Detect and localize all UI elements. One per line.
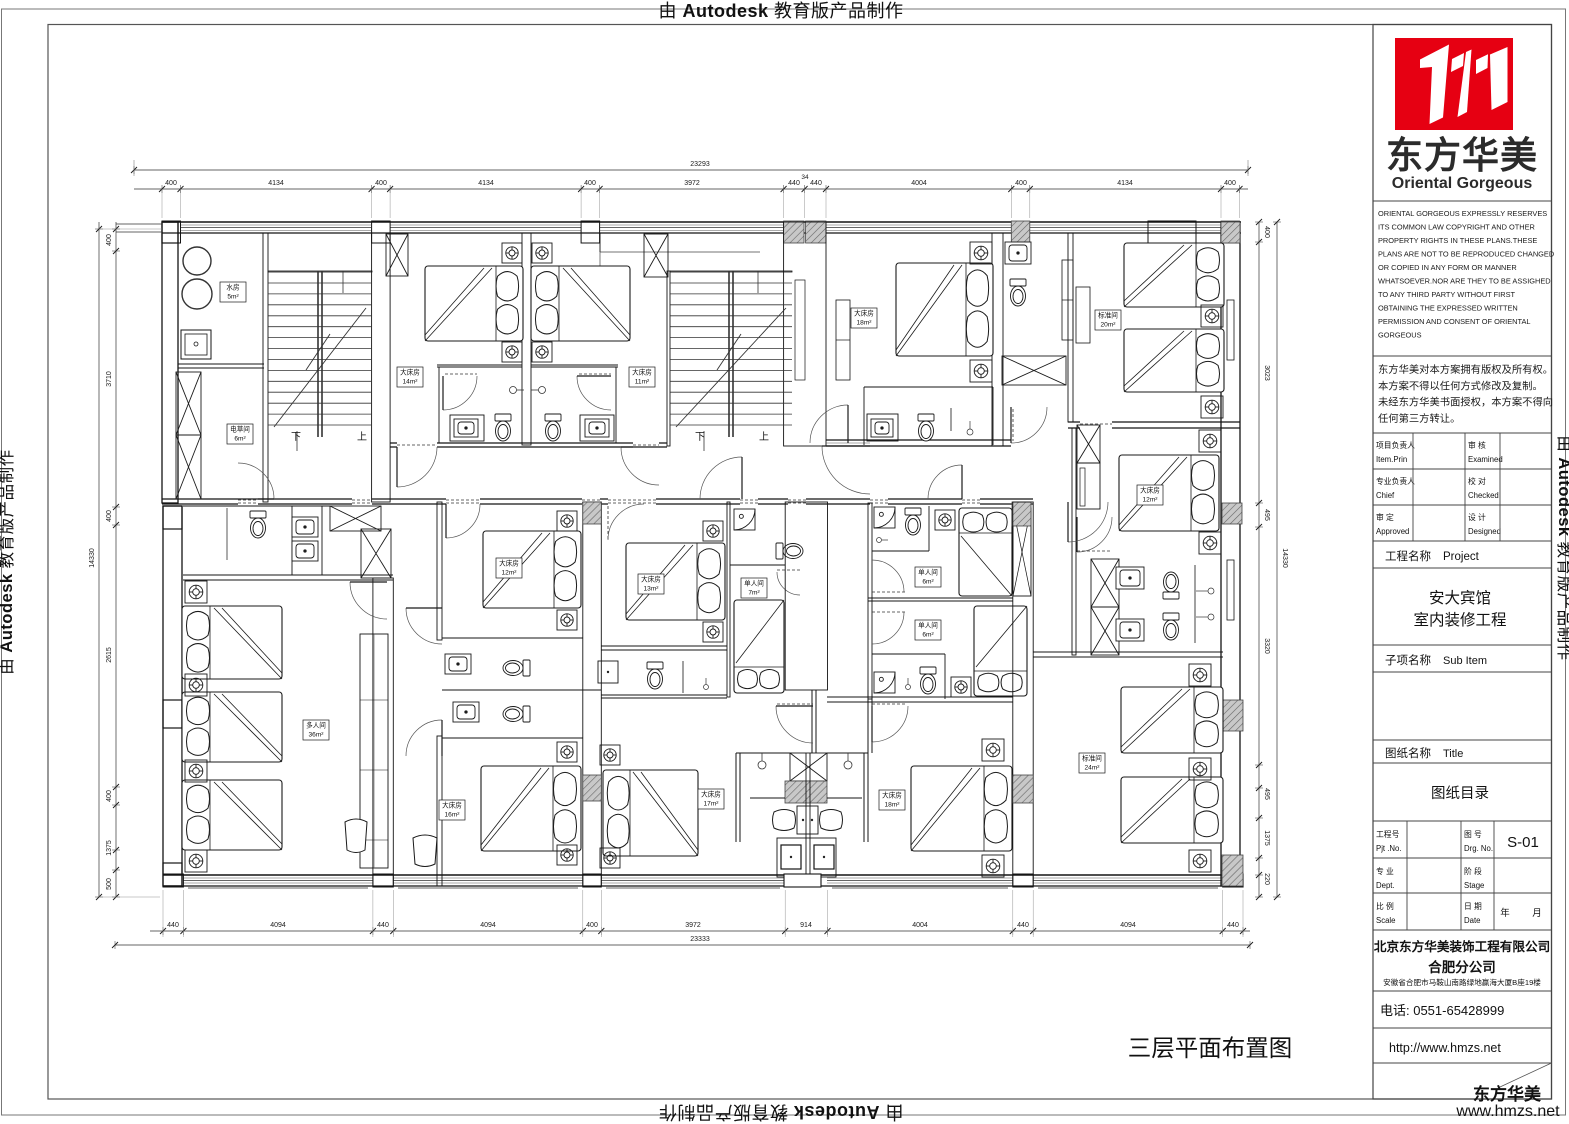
svg-text:东方华美: 东方华美 — [1473, 1084, 1542, 1104]
svg-text:Date: Date — [1464, 916, 1480, 925]
svg-text:3972: 3972 — [685, 922, 701, 929]
svg-text:6m²: 6m² — [234, 436, 246, 443]
svg-text:室内装修工程: 室内装修工程 — [1413, 611, 1506, 629]
svg-text:440: 440 — [1017, 922, 1029, 929]
svg-text:月: 月 — [1532, 908, 1542, 919]
svg-text:专 业: 专 业 — [1376, 866, 1394, 876]
svg-text:PERMISSION AND CONSENT OF ORIE: PERMISSION AND CONSENT OF ORIENTAL — [1378, 317, 1531, 326]
svg-text:440: 440 — [810, 180, 822, 187]
svg-text:审 定: 审 定 — [1376, 512, 1394, 522]
svg-text:下: 下 — [291, 432, 301, 443]
svg-text:www.hmzs.net: www.hmzs.net — [1455, 1103, 1560, 1120]
svg-text:4134: 4134 — [478, 180, 494, 187]
svg-text:Examined: Examined — [1468, 455, 1503, 464]
svg-text:由 Autodesk 教育版产品制作: 由 Autodesk 教育版产品制作 — [658, 1102, 903, 1122]
svg-text:比 例: 比 例 — [1376, 901, 1394, 911]
svg-text:500: 500 — [106, 878, 113, 890]
svg-text:18m²: 18m² — [884, 802, 900, 809]
svg-text:Scale: Scale — [1376, 916, 1396, 925]
svg-text:OBTAINING THE EXPRESSED WRITTE: OBTAINING THE EXPRESSED WRITTEN — [1378, 304, 1518, 313]
svg-text:34: 34 — [801, 174, 809, 181]
svg-text:400: 400 — [106, 790, 113, 802]
svg-text:工程号: 工程号 — [1376, 830, 1400, 839]
svg-text:12m²: 12m² — [501, 570, 517, 577]
svg-text:S-01: S-01 — [1507, 834, 1539, 851]
svg-text:PROPERTY RIGHTS IN THESE PLANS: PROPERTY RIGHTS IN THESE PLANS.THESE — [1378, 236, 1537, 245]
svg-text:WHATSOEVER.NOR ARE THEY TO BE: WHATSOEVER.NOR ARE THEY TO BE ASSIGHED — [1378, 277, 1551, 286]
svg-text:400: 400 — [586, 922, 598, 929]
svg-text:14m²: 14m² — [402, 379, 418, 386]
svg-text:4134: 4134 — [268, 180, 284, 187]
svg-text:单人间: 单人间 — [918, 621, 938, 630]
svg-text:合肥分公司: 合肥分公司 — [1428, 959, 1496, 975]
svg-text:Checked: Checked — [1468, 491, 1499, 500]
svg-text:大床房: 大床房 — [632, 368, 652, 377]
svg-text:阶 段: 阶 段 — [1464, 866, 1482, 876]
svg-text:440: 440 — [167, 922, 179, 929]
svg-text:图纸名称: 图纸名称 — [1385, 746, 1431, 760]
svg-text:Sub Item: Sub Item — [1443, 655, 1487, 667]
svg-text:由 Autodesk 教育版产品制作: 由 Autodesk 教育版产品制作 — [0, 449, 16, 674]
svg-text:Oriental Gorgeous: Oriental Gorgeous — [1392, 175, 1533, 192]
svg-text:Drg. No.: Drg. No. — [1464, 844, 1493, 853]
svg-text:多人间: 多人间 — [306, 721, 326, 730]
svg-text:3972: 3972 — [684, 180, 700, 187]
svg-text:大床房: 大床房 — [701, 790, 721, 799]
svg-text:大床房: 大床房 — [882, 791, 902, 800]
svg-text:12m²: 12m² — [1142, 497, 1158, 504]
svg-text:大床房: 大床房 — [442, 801, 462, 810]
svg-text:400: 400 — [1015, 180, 1027, 187]
svg-text:图 号: 图 号 — [1464, 830, 1482, 839]
svg-text:400: 400 — [1224, 180, 1236, 187]
svg-text:4094: 4094 — [270, 922, 286, 929]
svg-text:本方案不得以任何方式修改及复制。: 本方案不得以任何方式修改及复制。 — [1378, 379, 1543, 392]
svg-text:http://www.hmzs.net: http://www.hmzs.net — [1389, 1041, 1501, 1055]
svg-text:Designed: Designed — [1468, 527, 1501, 536]
svg-text:400: 400 — [375, 180, 387, 187]
svg-text:TO ANY THIRD PARTY WITHOUT FIR: TO ANY THIRD PARTY WITHOUT FIRST — [1378, 290, 1516, 299]
svg-text:440: 440 — [1227, 922, 1239, 929]
svg-text:4004: 4004 — [912, 922, 928, 929]
svg-text:未经东方华美书面授权，本方案不得向: 未经东方华美书面授权，本方案不得向 — [1378, 396, 1553, 409]
svg-text:11m²: 11m² — [635, 379, 650, 386]
svg-text:单人间: 单人间 — [918, 568, 938, 577]
svg-text:年: 年 — [1500, 907, 1510, 919]
svg-text:GORGEOUS: GORGEOUS — [1378, 331, 1422, 340]
svg-text:20m²: 20m² — [1100, 322, 1116, 329]
svg-text:专业负责人: 专业负责人 — [1376, 476, 1415, 486]
svg-text:图纸目录: 图纸目录 — [1431, 785, 1489, 802]
svg-text:Project: Project — [1443, 551, 1480, 563]
svg-text:7m²: 7m² — [748, 590, 760, 597]
svg-text:审 核: 审 核 — [1468, 440, 1486, 450]
svg-text:由 Autodesk 教育版产品制作: 由 Autodesk 教育版产品制作 — [1555, 435, 1569, 660]
svg-text:16m²: 16m² — [444, 812, 460, 819]
svg-text:大床房: 大床房 — [854, 309, 874, 318]
svg-text:24m²: 24m² — [1084, 765, 1100, 772]
svg-text:4004: 4004 — [911, 180, 927, 187]
svg-text:440: 440 — [788, 180, 800, 187]
svg-text:17m²: 17m² — [703, 801, 719, 808]
svg-text:13m²: 13m² — [643, 586, 659, 593]
svg-text:PLANS ARE NOT TO BE REPRODUCED: PLANS ARE NOT TO BE REPRODUCED CHANGED — [1378, 250, 1554, 259]
svg-text:大床房: 大床房 — [1140, 486, 1160, 495]
svg-text:400: 400 — [165, 180, 177, 187]
svg-text:440: 440 — [377, 922, 389, 929]
svg-text:Pjt .No.: Pjt .No. — [1376, 844, 1402, 853]
svg-text:3320: 3320 — [1263, 638, 1270, 654]
svg-text:ITS COMMON LAW COPYRIGHT AND O: ITS COMMON LAW COPYRIGHT AND OTHER — [1378, 223, 1535, 232]
svg-text:东方华美: 东方华美 — [1386, 135, 1538, 176]
svg-text:6m²: 6m² — [922, 632, 934, 639]
svg-text:安大宾馆: 安大宾馆 — [1429, 589, 1491, 607]
svg-text:下: 下 — [695, 432, 705, 443]
svg-text:水房: 水房 — [226, 283, 240, 292]
svg-text:400: 400 — [106, 234, 113, 246]
svg-text:4094: 4094 — [1120, 922, 1136, 929]
svg-text:1375: 1375 — [106, 840, 113, 856]
svg-text:14330: 14330 — [89, 548, 96, 568]
svg-text:14330: 14330 — [1281, 548, 1288, 568]
svg-text:220: 220 — [1263, 873, 1270, 885]
svg-text:安徽省合肥市马鞍山南路绿地赢海大厦B座19楼: 安徽省合肥市马鞍山南路绿地赢海大厦B座19楼 — [1383, 977, 1541, 987]
svg-text:三层平面布置图: 三层平面布置图 — [1128, 1035, 1293, 1061]
svg-text:单人间: 单人间 — [744, 579, 764, 588]
svg-text:项目负责人: 项目负责人 — [1376, 440, 1415, 450]
svg-text:上: 上 — [759, 431, 769, 443]
svg-text:23293: 23293 — [690, 161, 710, 168]
svg-text:4094: 4094 — [480, 922, 496, 929]
svg-text:914: 914 — [800, 922, 812, 929]
svg-text:400: 400 — [584, 180, 596, 187]
svg-text:任何第三方转让。: 任何第三方转让。 — [1378, 412, 1460, 425]
svg-text:4134: 4134 — [1117, 180, 1133, 187]
svg-text:ORIENTAL GORGEOUS EXPRESSLY RE: ORIENTAL GORGEOUS EXPRESSLY RESERVES — [1378, 209, 1547, 218]
svg-text:5m²: 5m² — [227, 294, 239, 301]
svg-text:2615: 2615 — [106, 647, 113, 663]
svg-text:1375: 1375 — [1263, 830, 1270, 846]
svg-text:3710: 3710 — [106, 371, 113, 387]
svg-text:东方华美对本方案拥有版权及所有权。: 东方华美对本方案拥有版权及所有权。 — [1378, 363, 1553, 376]
svg-text:工程名称: 工程名称 — [1385, 549, 1431, 563]
svg-text:495: 495 — [1263, 509, 1270, 521]
svg-text:6m²: 6m² — [922, 579, 934, 586]
svg-text:Stage: Stage — [1464, 881, 1484, 890]
svg-text:北京东方华美装饰工程有限公司: 北京东方华美装饰工程有限公司 — [1374, 939, 1550, 954]
svg-text:Title: Title — [1443, 748, 1463, 760]
svg-text:由 Autodesk 教育版产品制作: 由 Autodesk 教育版产品制作 — [658, 1, 903, 21]
svg-text:Chief: Chief — [1376, 491, 1395, 500]
svg-text:上: 上 — [357, 431, 367, 443]
svg-text:Dept.: Dept. — [1376, 881, 1395, 890]
svg-text:大床房: 大床房 — [499, 559, 519, 568]
svg-text:Approved: Approved — [1376, 527, 1409, 536]
svg-text:子项名称: 子项名称 — [1385, 653, 1431, 667]
svg-text:设 计: 设 计 — [1468, 512, 1486, 522]
svg-text:495: 495 — [1263, 788, 1270, 800]
svg-text:标准间: 标准间 — [1098, 311, 1118, 320]
svg-text:标准间: 标准间 — [1082, 754, 1102, 763]
svg-text:23333: 23333 — [690, 936, 710, 943]
svg-text:400: 400 — [1263, 226, 1270, 238]
svg-text:电话: 0551-65428999: 电话: 0551-65428999 — [1380, 1003, 1504, 1018]
svg-text:Item.Prin: Item.Prin — [1376, 455, 1407, 464]
svg-text:18m²: 18m² — [856, 320, 872, 327]
svg-text:校 对: 校 对 — [1468, 476, 1486, 486]
svg-text:大床房: 大床房 — [641, 575, 661, 584]
svg-text:OR COPIED IN ANY FORM OR MANNE: OR COPIED IN ANY FORM OR MANNER — [1378, 263, 1517, 272]
svg-text:3023: 3023 — [1263, 365, 1270, 381]
svg-text:大床房: 大床房 — [400, 368, 420, 377]
svg-text:电草间: 电草间 — [230, 425, 250, 434]
svg-text:400: 400 — [106, 510, 113, 522]
svg-text:36m²: 36m² — [308, 732, 324, 739]
svg-text:日 期: 日 期 — [1464, 902, 1482, 911]
